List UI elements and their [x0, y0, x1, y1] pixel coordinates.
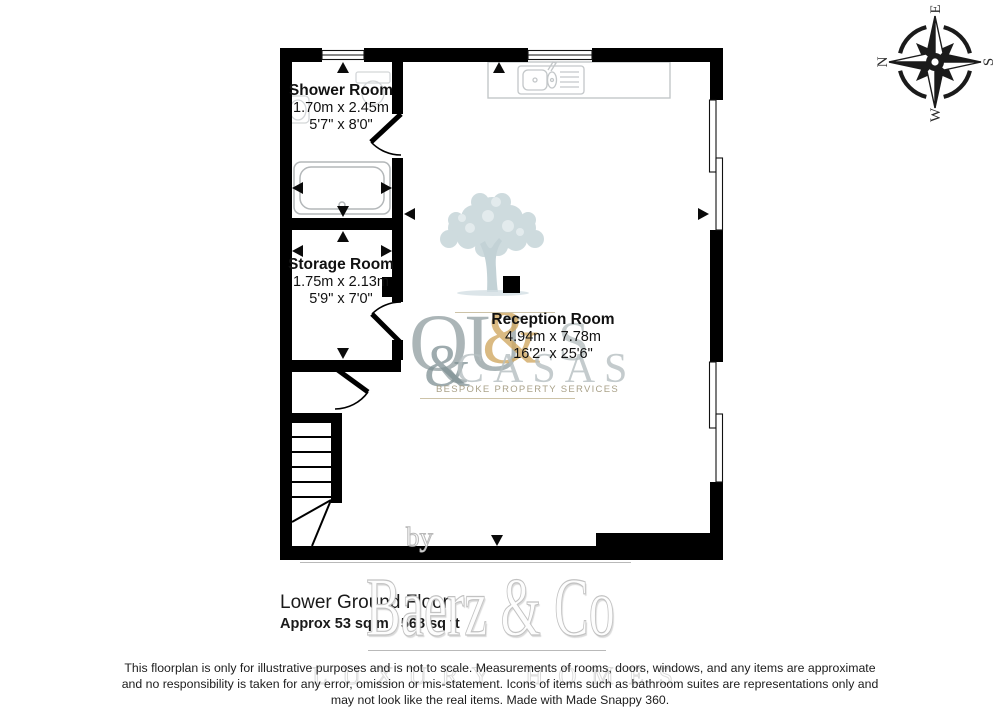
room-name: Shower Room [285, 82, 397, 100]
tree-watermark [440, 193, 544, 296]
room-dim-imperial: 5'9" x 7'0" [285, 291, 397, 309]
staircase [292, 437, 331, 546]
compass-west-label: W [928, 107, 944, 122]
window-right-lower-b [716, 414, 723, 482]
room-name: Storage Room [285, 256, 397, 274]
disclaimer-text: This floorplan is only for illustrative … [0, 660, 1000, 708]
window-right-upper-a [710, 100, 717, 172]
brand-by-label: by [406, 522, 433, 553]
arrow-storage-down [337, 348, 349, 359]
room-dim-metric: 1.75m x 2.13m [285, 274, 397, 292]
arrow-shower-up [337, 62, 349, 73]
kitchen-sink-icon [518, 62, 584, 94]
room-dim-imperial: 16'2" x 25'6" [468, 346, 638, 364]
arrow-reception-up [493, 62, 505, 73]
kitchen-counter [488, 62, 670, 98]
room-label-reception: Reception Room 4.94m x 7.78m 16'2" x 25'… [468, 311, 638, 364]
arrow-reception-down [491, 535, 503, 546]
window-top-kitchen [528, 51, 592, 60]
arrow-reception-left [404, 208, 415, 220]
room-label-storage: Storage Room 1.75m x 2.13m 5'9" x 7'0" [285, 256, 397, 309]
door-hall [335, 368, 368, 409]
room-dim-metric: 4.94m x 7.78m [468, 329, 638, 347]
logo-rule-bottom [420, 398, 575, 399]
arrow-reception-right [698, 208, 709, 220]
brand-watermark: Baerz & Co [366, 566, 615, 650]
window-right-lower-a [710, 362, 717, 428]
floorplan-page: E S W N QU & S & CASAS BESPOKE PROPERTY … [0, 0, 1000, 724]
logo-tagline: BESPOKE PROPERTY SERVICES [436, 384, 619, 395]
disclaimer-line-3: may not look like the real items. Made w… [0, 692, 1000, 708]
room-dim-metric: 1.70m x 2.45m [285, 100, 397, 118]
window-right-upper-b [716, 158, 723, 230]
brand-rule-bottom [368, 650, 606, 651]
compass-north-label: N [875, 56, 891, 67]
room-name: Reception Room [468, 311, 638, 329]
compass-east-label: E [928, 4, 944, 13]
compass-south-label: S [981, 58, 997, 66]
disclaimer-line-1: This floorplan is only for illustrative … [0, 660, 1000, 676]
window-top-shower [322, 51, 364, 60]
compass-rose: E S W N [875, 4, 997, 122]
room-dim-imperial: 5'7" x 8'0" [285, 117, 397, 135]
room-label-shower: Shower Room 1.70m x 2.45m 5'7" x 8'0" [285, 82, 397, 135]
arrow-storage-up [337, 231, 349, 242]
structural-column [503, 276, 520, 293]
disclaimer-line-2: and no responsibility is taken for any e… [0, 676, 1000, 692]
